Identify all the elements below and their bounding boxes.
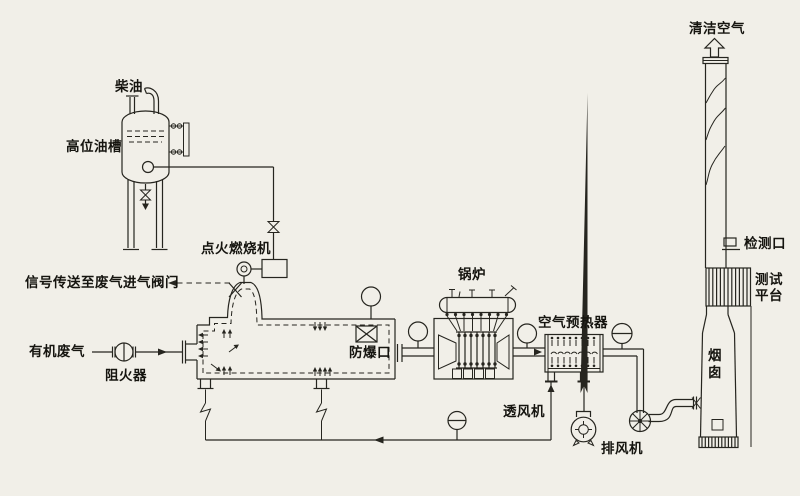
duct-preheater-fan xyxy=(603,349,644,413)
drum-fittings xyxy=(449,286,517,298)
label-ventilation-fan: 透风机 xyxy=(503,404,545,420)
label-organic-waste-gas: 有机废气 xyxy=(29,344,85,360)
ventilation-fan-symbol xyxy=(448,412,466,441)
label-detection-port: 检测口 xyxy=(744,236,786,252)
tube-bundle xyxy=(456,332,497,368)
pressure-gauge-3 xyxy=(518,324,537,348)
label-exhaust-fan: 排风机 xyxy=(601,441,643,457)
label-oil-tank: 高位油槽 xyxy=(66,139,122,155)
ignition-burner xyxy=(237,260,287,285)
bottom-nozzles xyxy=(198,379,330,440)
diagram-linework xyxy=(0,0,800,496)
label-chimney: 烟囱 xyxy=(708,348,723,382)
label-signal: 信号传送至废气进气阀门 xyxy=(25,275,179,291)
blower-fan xyxy=(571,93,596,446)
pressure-gauge-1 xyxy=(362,287,381,319)
drum-tube-dots xyxy=(445,313,508,316)
preheater-tubes xyxy=(551,340,597,364)
exhaust-fan xyxy=(630,411,651,432)
clean-air-arrow xyxy=(705,39,724,58)
explosion-vent xyxy=(356,326,377,342)
detection-port xyxy=(722,238,740,250)
label-test-platform: 测试平台 xyxy=(755,272,784,304)
duct-incinerator-boiler xyxy=(398,344,435,362)
label-ignition-burner: 点火燃烧机 xyxy=(201,241,271,257)
oil-valve xyxy=(268,222,279,233)
label-diesel: 柴油 xyxy=(115,79,143,95)
label-air-preheater: 空气预热器 xyxy=(538,315,608,331)
air-preheater xyxy=(545,335,603,382)
chimney-base xyxy=(699,437,738,448)
flow-arrowheads xyxy=(198,327,332,372)
label-explosion-vent: 防爆口 xyxy=(349,345,391,361)
flame-arrester xyxy=(113,343,136,361)
exhaust-duct xyxy=(649,397,701,422)
pressure-gauge-4 xyxy=(612,324,632,350)
label-flame-arrester: 阻火器 xyxy=(105,368,147,384)
spiral-strakes xyxy=(706,78,726,185)
waste-gas-line xyxy=(92,343,183,361)
label-boiler: 锅炉 xyxy=(458,267,486,283)
incinerator xyxy=(183,283,396,441)
cleanout-door xyxy=(712,420,723,431)
pressure-gauge-2 xyxy=(409,322,428,348)
level-gauge xyxy=(169,123,189,156)
process-flow-diagram: 柴油 高位油槽 点火燃烧机 信号传送至废气进气阀门 有机废气 阻火器 防爆口 锅… xyxy=(0,0,800,496)
label-clean-air: 清洁空气 xyxy=(689,21,745,37)
test-platform xyxy=(706,268,751,306)
boiler-feet xyxy=(453,369,495,379)
drain-valve xyxy=(141,184,151,210)
boiler xyxy=(434,286,517,380)
duct-boiler-preheater xyxy=(513,348,545,356)
oil-tank xyxy=(122,88,189,250)
